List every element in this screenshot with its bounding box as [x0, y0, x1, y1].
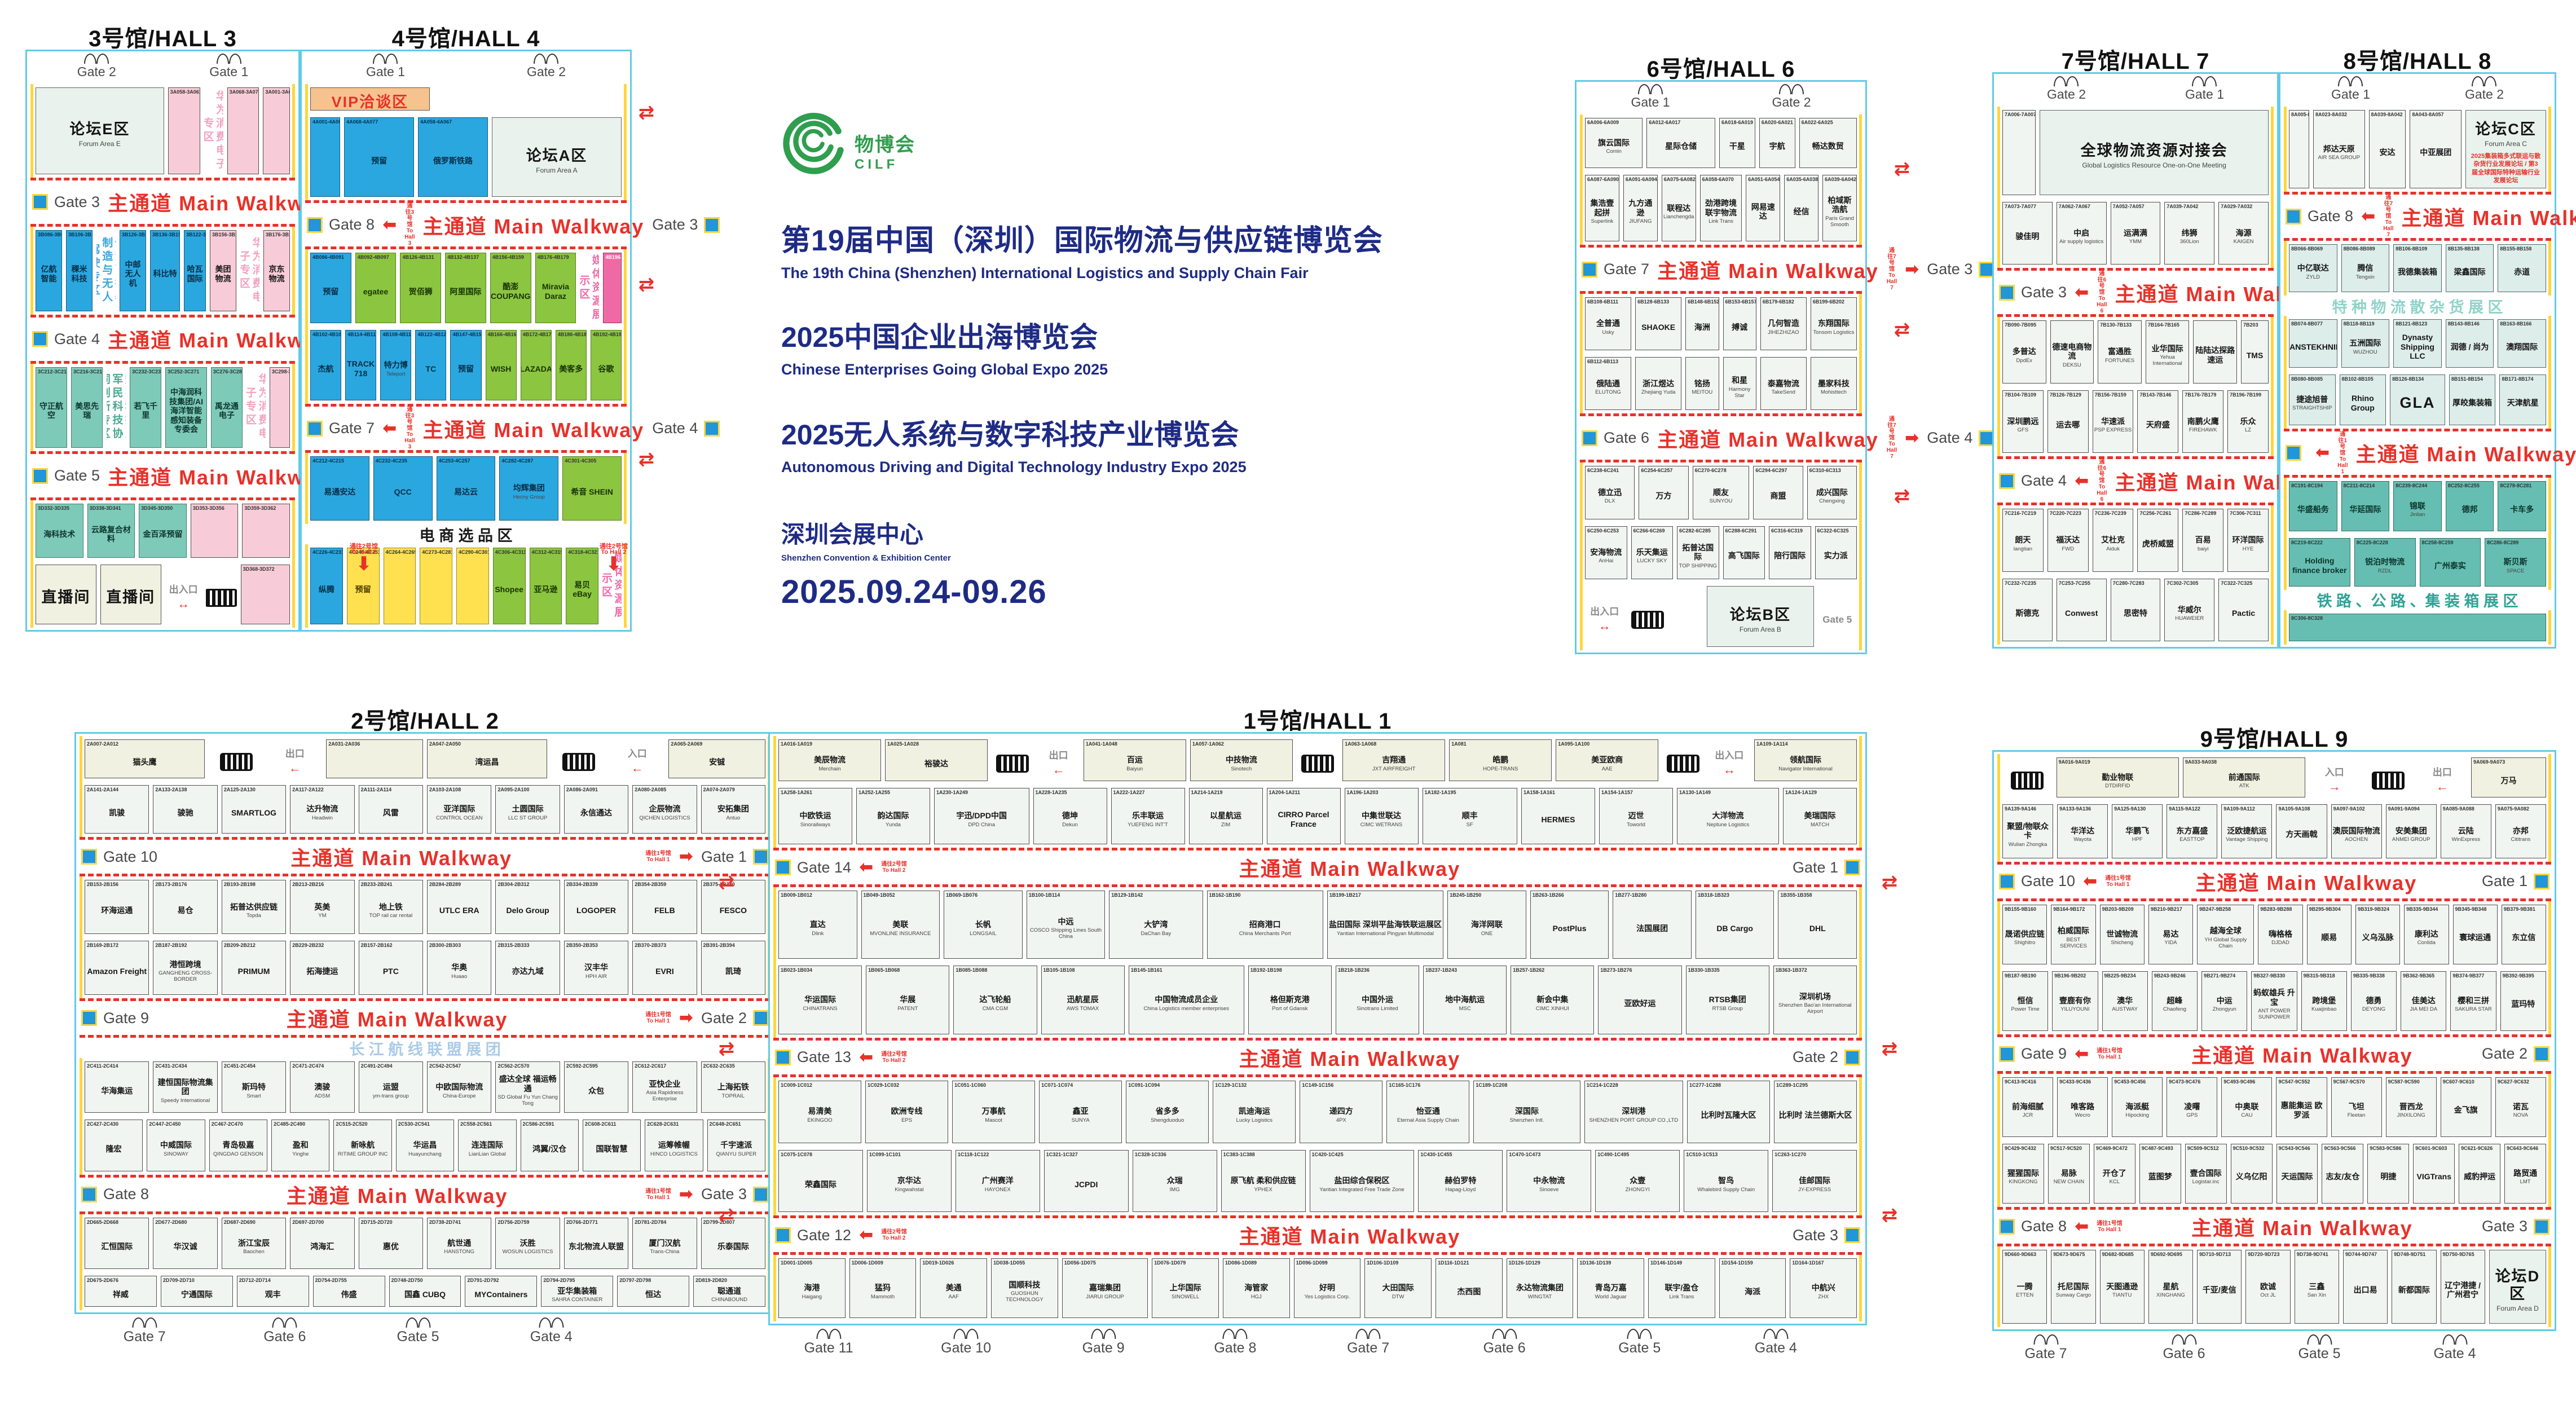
booth-id: 7C302-7C305: [2167, 580, 2198, 586]
booth-label: 纬狮: [2182, 228, 2198, 238]
booth-label: 特力博: [384, 360, 408, 370]
main-walkway-label: 主通道 Main Walkway: [108, 324, 329, 354]
booth-深圳港: 1C214-1C228深圳港SHENZHEN PORT GROUP CO.,LT…: [1584, 1081, 1683, 1143]
walkway-gate-left: Gate 9: [2021, 1045, 2067, 1063]
booth-id: 1D116-1D121: [1438, 1260, 1469, 1266]
booth-id: 7C236-7C239: [2095, 510, 2126, 516]
booth-sublabel: Yantian International Pingyan Multimodal: [1337, 931, 1434, 937]
gate-label: Gate 9: [1082, 1340, 1125, 1356]
booth-顺丰: 1A182-1A195顺丰SF: [1423, 788, 1518, 844]
booth-id: 2B169-2B172: [87, 942, 118, 948]
booth-id: 3C232-3C235: [132, 369, 161, 374]
booth-id: 9B379-9B381: [2504, 906, 2535, 912]
booth-恒达: 2D797-2D798恒达: [617, 1276, 689, 1307]
gate-arch-icon: [2442, 1334, 2467, 1345]
booth-sublabel: Yunda: [886, 822, 901, 828]
booth-sublabel: DEYONG: [2362, 1006, 2385, 1012]
booth-青岛万嘉: 1D136-1D139青岛万嘉World Jaguar: [1577, 1258, 1644, 1318]
escalator-icon: [551, 739, 606, 778]
booth-Holding-finance-broker: 8C219-8C222Holding finance broker: [2289, 538, 2350, 586]
gate-label: Gate 2: [2465, 87, 2504, 102]
booth-佳美达: 9B362-9B365佳美达JIA MEI DA: [2401, 971, 2446, 1031]
booth-label: 直播间: [106, 589, 155, 607]
booth-id: 1C189-1C208: [1476, 1082, 1507, 1088]
booth-label: 越海全球: [2210, 926, 2242, 936]
booth-上华国际: 1D076-1D079上华国际SINOWELL: [1152, 1258, 1219, 1318]
booth-sublabel: SHENZHEN PORT GROUP CO.,LTD: [1589, 1117, 1679, 1123]
booth-sublabel: Navigator International: [1778, 766, 1833, 772]
booth-sublabel: JCR: [2023, 1112, 2033, 1118]
booth-label: 顺易: [2321, 933, 2337, 942]
booth-label: 顺丰: [1462, 811, 1478, 821]
logo-english: CILF: [855, 157, 915, 173]
booth-label: 万马: [2501, 776, 2517, 786]
booth-label: 亿航智能: [37, 265, 60, 283]
gate-arch-icon: [816, 1329, 841, 1339]
booth-label: Amazon Freight: [87, 967, 147, 976]
gate-label: Gate 1: [2185, 87, 2224, 102]
escalator-glyph: [220, 753, 253, 771]
booth-label: 千亚/麦信: [2203, 1285, 2236, 1295]
gate-entrance: Gate 7: [2024, 1334, 2067, 1362]
booth-label: 全球物流资源对接会: [2081, 142, 2228, 160]
booth-id: 2C467-2C470: [212, 1121, 243, 1127]
booth-sublabel: CHINATRANS: [803, 1006, 838, 1012]
booth-label: 骏驰: [178, 808, 193, 818]
booth-id: 4A001-4A005: [312, 119, 340, 125]
booth-band: 出入口↔论坛B区Forum Area BGate 5: [1580, 583, 1862, 650]
escalator-icon: [1628, 586, 1667, 647]
booth-拓普达国际: 6C282-6C285拓普达国际TOP SHIPPING: [1677, 526, 1719, 579]
booth-sublabel: YM: [318, 913, 326, 919]
main-walkway: Gate 7主通道 Main Walkway通往7号馆To Hall 7➡Gat…: [1580, 245, 1862, 294]
booth-id: 2C586-2C591: [523, 1121, 554, 1127]
booth-id: 4A068-4A077: [346, 119, 378, 125]
booth-label: 数字科技及军民科技协同创新专区: [107, 368, 126, 447]
booth-label: 华延国际: [2349, 505, 2381, 514]
booth-华海集运: 2C411-2C414华海集运: [85, 1061, 149, 1113]
booth-鸿翼/汉仓: 2C586-2C591鸿翼/汉仓: [521, 1120, 579, 1171]
hall-2-title: 2号馆/HALL 2: [351, 703, 499, 735]
booth-label: 几何智造: [1768, 319, 1799, 328]
booth-sublabel: GPS: [2186, 1112, 2198, 1118]
booth-id: 1B192-1B198: [1250, 967, 1282, 973]
booth-东方嘉盛: 9A115-9A122东方嘉盛EASTTOP: [2167, 804, 2217, 858]
booth-label: 蚂蚁雄兵 升宝: [2253, 988, 2295, 1007]
booth-旗云国际: 6A006-6A009旗云国际Comin: [1585, 118, 1643, 168]
booth-label: 荣鑫国际: [805, 1180, 836, 1189]
elevator-icon: [1846, 861, 1859, 874]
booth-label: 盐田综合保税区: [1334, 1176, 1389, 1186]
booth-安铖: 2A065-2A069安铖: [668, 739, 765, 778]
booth-出口: 出口←: [1037, 739, 1079, 781]
booth-id: 8B151-8B154: [2451, 376, 2483, 382]
booth-RTSB集团: 1B330-1B335RTSB集团RTSB Group: [1686, 966, 1769, 1034]
to-hall-arrow-icon: ➡: [1905, 430, 1919, 447]
booth-众壹: 1C490-1C495众壹ZHONGYI: [1595, 1150, 1680, 1213]
booth-label: 建恒国际物流集团: [155, 1078, 215, 1096]
booth-label: 海派: [1745, 1287, 1760, 1297]
gate-label: Gate 10: [941, 1340, 991, 1356]
booth-广州泰实: 8C258-8C259广州泰实: [2420, 538, 2481, 586]
booth-海港: 1D001-1D005海港Haigang: [778, 1258, 846, 1318]
booth-label: 旗云国际: [1598, 138, 1630, 148]
booth-国鑫-CUBQ: 2D748-2D750国鑫 CUBQ: [389, 1276, 461, 1307]
booth-LOGOPER: 2B334-2B339LOGOPER: [564, 880, 628, 934]
booth-label: 盐田国际 深圳平盐海铁联运展区: [1329, 920, 1442, 929]
booth-label: 科比特: [153, 269, 177, 279]
booth-label: 壹合国际: [2190, 1169, 2222, 1178]
booth-id: 7A073-7A077: [2005, 204, 2036, 209]
booth-sublabel: Oct JL: [2260, 1292, 2275, 1298]
booth-label: Shopee: [495, 585, 523, 594]
booth-思密特: 7C280-7C283思密特: [2111, 579, 2161, 642]
booth-id: 2A117-2A122: [292, 787, 324, 792]
elevator-icon: [1980, 432, 1993, 444]
hall-link-arrows: ⇄: [639, 451, 655, 469]
booth-id: 9A091-9A094: [2388, 806, 2420, 812]
booth-id: 1A025-1A028: [887, 741, 919, 747]
booth-中海润科技集团/AI海洋智能感知装备专委会: 3C252-3C271中海润科技集团/AI海洋智能感知装备专委会: [165, 367, 207, 448]
gate-label: Gate 7: [1347, 1340, 1389, 1356]
booth-id: 7A039-7A042: [2167, 204, 2198, 209]
booth-label: 众瑞: [1167, 1176, 1183, 1186]
booth-label: 梁鑫国际: [2454, 267, 2486, 277]
booth-id: 7C322-7C325: [2221, 580, 2252, 586]
walkway-gate-right: Gate 3: [1927, 261, 1972, 278]
booth-美联: 1B049-1B052美联MVONLINE INSURANCE: [861, 891, 940, 959]
booth-label: 京东物流: [265, 265, 288, 283]
booth-id: 1C214-1C228: [1587, 1082, 1618, 1088]
booth-和星: 和星Harmony Star: [1723, 357, 1756, 410]
main-walkway: Gate 4⬅通往6号馆To Hall 6主通道 Main Walkway通往8…: [1997, 456, 2274, 505]
booth-sublabel: Wulian Zhongka: [2009, 841, 2047, 848]
booth-康利达: 9B335-9B344康利达Conlida: [2404, 905, 2449, 964]
booth-id: 6C254-6C257: [1641, 468, 1672, 473]
booth-label: 辽宁港捷 / 广州君宁: [2442, 1281, 2483, 1299]
booth-label: 澳华: [2117, 996, 2133, 1006]
booth-华汉诚: 2D677-2D680华汉诚: [153, 1218, 217, 1269]
booth-label: 若飞千里: [131, 402, 160, 420]
hall-link-arrows: ⇄: [1882, 874, 1898, 892]
booth-sublabel: →: [2328, 779, 2341, 794]
booth-label: 艾杜克: [2101, 535, 2125, 545]
booth-中邮无人机: 3B126-3B131中邮无人机: [120, 230, 146, 311]
booth-sublabel: AUSTWAY: [2112, 1006, 2138, 1012]
booth-id: 3C298-3C321: [272, 369, 290, 374]
booth-id: 9B164-9B172: [2053, 906, 2085, 912]
main-walkway-label: 主通道 Main Walkway: [423, 210, 645, 240]
booth-德速电商物流: 德速电商物流DEKSU: [2050, 320, 2094, 384]
walkway-gate-left: Gate 3: [54, 193, 100, 211]
walkway-gate-right: Gate 3: [701, 1186, 747, 1203]
booth-HERMES: 1A158-1A161HERMES: [1521, 788, 1595, 844]
booth-label: 湾运昌: [475, 757, 499, 767]
booth-band: 7A073-7A077骏佳明7A062-7A067中启Air supply lo…: [1997, 199, 2274, 268]
booth-label: 润德 / 尚为: [2451, 342, 2489, 352]
booth-id: 1D076-1D079: [1154, 1260, 1186, 1266]
escalator-glyph: [2011, 772, 2044, 790]
booth-label: 出入口: [169, 584, 198, 596]
booth-id: 4B192-4B195: [593, 332, 622, 337]
gate-entrance: Gate 2: [2047, 76, 2086, 102]
booth-label: 高飞国际: [1728, 551, 1760, 561]
booth-id: 3A068-3A071: [230, 89, 259, 95]
booth-label: 海港: [804, 1283, 820, 1293]
booth-label: 斯德克: [2015, 609, 2039, 618]
elevator-icon: [706, 422, 718, 435]
booth-id: 1A230-1A249: [936, 790, 968, 795]
booth-id: 2B173-2B176: [155, 882, 187, 887]
booth-label: 华运昌: [413, 1140, 437, 1150]
gate-label: Gate 7: [2024, 1346, 2067, 1362]
booth-id: 4A058-4A067: [420, 119, 452, 125]
booth-sublabel: ←: [1053, 763, 1065, 777]
booth-深国际: 1C189-1C208深国际Shenzhen Intl.: [1473, 1081, 1580, 1143]
booth-id: 2B304-2B312: [497, 882, 529, 887]
hall-6-plan: Gate 1Gate 26A006-6A009旗云国际Comin6A012-6A…: [1575, 80, 1867, 654]
booth-label: 业华国际: [2152, 344, 2183, 354]
booth-原飞航-柔和供应链: 1C383-1C388原飞航 柔和供应链YPHEX: [1221, 1150, 1306, 1213]
logo-chinese: 物博会: [855, 129, 915, 157]
booth-label: Delo Group: [507, 906, 549, 915]
booth-希音-SHEIN: 4C301-4C305希音 SHEIN: [562, 456, 622, 521]
booth-label: 大田国际: [1382, 1283, 1414, 1293]
booth-id: 3C276-3C281: [213, 369, 243, 374]
booth-label: 华鹏飞: [2125, 826, 2149, 836]
hall-8-plan: Gate 1Gate 28A005-8A0078A023-8A032邦达天原AI…: [2279, 72, 2556, 649]
gate-entrance: Gate 5: [1618, 1329, 1661, 1356]
booth-id: 3C212-3C215: [38, 369, 67, 374]
booth-sublabel: QINGDAO GENSON: [213, 1151, 263, 1157]
booth-id: 1C321-1C327: [1046, 1152, 1078, 1157]
gate-arch-icon: [132, 1317, 157, 1328]
booth-id: 4B166-4B169: [488, 332, 517, 337]
booth-id: 7B176-7B179: [2185, 392, 2216, 398]
booth-猛犸: 1D006-1D009猛犸Mammoth: [849, 1258, 917, 1318]
booth-中启: 7A062-7A067中启Air supply logistics: [2057, 202, 2107, 265]
booth-id: 4C232-4C235: [376, 458, 407, 464]
gate-label: Gate 6: [2163, 1346, 2205, 1362]
booth-label: 乐天集运: [1636, 548, 1668, 557]
booth-id: 9D748-9D751: [2394, 1251, 2425, 1257]
booth-label: 哈瓦国际: [186, 265, 204, 283]
booth-id: 9C567-9C570: [2333, 1079, 2365, 1085]
booth-纬狮: 7A039-7A042纬狮360Lion: [2164, 202, 2214, 265]
booth-志友/友仓: 9C563-9C566志友/友仓: [2322, 1144, 2363, 1204]
hall-top-gates: Gate 1Gate 2: [1580, 84, 1862, 114]
booth-band: 6A087-6A090集浩壹起拼Superlink6A091-6A094九方通逊…: [1580, 171, 1862, 245]
booth-顺友: 6C270-6C278顺友SUNYOU: [1693, 466, 1750, 519]
main-walkway: Gate 9主通道 Main Walkway通往1号馆To Hall 1➡Gat…: [80, 998, 770, 1038]
booth-sublabel: Paris Grand Smooth: [1824, 215, 1855, 228]
booth-id: 1A154-1A157: [1601, 790, 1633, 795]
fair-title-en: The 19th China (Shenzhen) International …: [781, 265, 1514, 282]
main-walkway: Gate 3⬅通往6号馆To Hall 6主通道 Main Walkway通往8…: [1997, 268, 2274, 317]
booth-sublabel: WOSUN LOGISTICS: [503, 1249, 553, 1255]
booth-sublabel: IMG: [1170, 1187, 1180, 1193]
booth-sublabel: LianLian Global: [469, 1151, 506, 1157]
walkway-gate-left: Gate 12: [797, 1227, 851, 1244]
booth-id: 9C429-9C432: [2005, 1145, 2036, 1151]
booth-label: 低空飞行器制造与无人驾驶专区: [96, 231, 116, 310]
booth-label: 航世通: [447, 1239, 471, 1248]
gate-entrance: Gate 1: [2185, 76, 2224, 102]
booth-id: 4B102-4B105: [312, 332, 341, 337]
booth-超峰: 9B243-9B246超峰Chaofeng: [2152, 971, 2198, 1031]
booth-业华国际: 7B164-7B165业华国际Yehua International: [2146, 320, 2190, 384]
booth-蓝图梦: 9C487-9C493蓝图梦: [2139, 1144, 2181, 1204]
booth-id: 1A057-1A062: [1192, 741, 1224, 747]
main-walkway-label: 主通道 Main Walkway: [915, 1220, 1785, 1250]
booth-label: 海源: [2236, 228, 2252, 238]
elevator-icon: [2001, 287, 2013, 299]
booth-label: 均辉集团: [513, 483, 545, 493]
booth-前通国际: 9A033-9A038前通国际ATK: [2183, 757, 2305, 797]
to-hall-arrow-icon: ⬅: [2361, 208, 2375, 225]
booth-id: 1A109-1A114: [1756, 741, 1788, 747]
booth-id: 2B370-2B373: [635, 942, 666, 948]
booth-sublabel: ANT POWER SUNPOWER: [2253, 1008, 2295, 1020]
walkway-gate-right: Gate 1: [1793, 859, 1838, 876]
booth-label: 新会中集: [1536, 995, 1568, 1004]
booth-id: 2D794-2D795: [543, 1277, 575, 1283]
booth-label: 佳美达: [2412, 996, 2436, 1006]
booth-id: 4C264-4C269: [386, 549, 416, 555]
booth: 3D368-3D372: [241, 565, 290, 624]
booth-id: 6B148-6B152: [1688, 299, 1719, 305]
booth-id: 2A086-2A091: [566, 787, 598, 792]
booth-sublabel: Sinotrans Limited: [1357, 1006, 1398, 1012]
booth-华速派: 7B156-7B159华速派PSP EXPRESS: [2093, 390, 2134, 453]
hall-3-plan: Gate 2Gate 1论坛E区Forum Area E3A058-3A061华…: [25, 50, 300, 632]
booth-id: 2B229-2B232: [292, 942, 324, 948]
booth-label: 亚洋国际: [443, 804, 475, 814]
booth-id: 9D682-9D685: [2102, 1251, 2134, 1257]
booth-label: 联程达: [1667, 204, 1690, 213]
booth-sublabel: RZDL: [2378, 568, 2392, 574]
booth-sublabel: Kingwahstal: [895, 1187, 923, 1193]
booth-中集世联达: 1A196-1A203中集世联达CIMC WETRANS: [1345, 788, 1419, 844]
booth-label: 直达: [810, 920, 826, 929]
to-hall-caption: 通往3号馆To Hall 3: [404, 407, 415, 450]
booth: 4A001-4A005: [310, 117, 340, 197]
booth-label: 京华达: [897, 1176, 921, 1186]
booth-sublabel: DTW: [1392, 1294, 1404, 1300]
booth-sublabel: Fleetan: [2348, 1112, 2366, 1118]
booth-label: 中亚展团: [2420, 148, 2451, 157]
booth-label: 中奥联: [2235, 1102, 2258, 1112]
booth-id: 9B225-9B234: [2104, 973, 2136, 979]
booth-label: 德坤: [1062, 811, 1078, 821]
booth-band: 2C427-2C430隆宏2C447-2C450中威国际SINOWAY2C467…: [80, 1116, 770, 1174]
booth-id: 7B104-7B109: [2005, 392, 2036, 398]
booth-id: 9C643-9C646: [2507, 1145, 2538, 1151]
main-walkway-label: 主通道 Main Walkway: [108, 187, 329, 217]
gate-arch-icon: [2033, 1334, 2058, 1345]
booth-label: 俄陆通: [1596, 379, 1620, 389]
hall-link-arrows: ⇄: [719, 1207, 735, 1224]
booth-label: 锦联: [2410, 501, 2425, 511]
booth-id: 9C473-9C476: [2169, 1079, 2200, 1085]
booth-id: 8B155-8B158: [2500, 246, 2531, 252]
booth-label: 连连国际: [472, 1140, 503, 1150]
booth-band: 2A141-2A144凯骏2A133-2A138骏驰2A125-2A130SMA…: [80, 782, 770, 838]
booth-海洲: 6B148-6B152海洲: [1685, 297, 1719, 350]
gate-label: Gate 2: [1772, 95, 1811, 110]
booth-实力派: 6C322-6C325实力派: [1815, 526, 1857, 579]
booth-id: 1B069-1B076: [946, 892, 977, 898]
booth-id: 1B245-1B250: [1450, 892, 1481, 898]
booth-sublabel: ATK: [2239, 783, 2249, 789]
booth-墨家科技: 墨家科技Mohisttech: [1811, 357, 1857, 410]
booth-id: 7C216-7C219: [2005, 510, 2036, 516]
booth-id: 6A087-6A090: [1587, 177, 1619, 182]
booth-格但斯克港: 1B192-1B198格但斯克港Port of Gdansk: [1248, 966, 1332, 1034]
booth-Miravia-Daraz: 4B176-4B179Miravia Daraz: [535, 253, 576, 323]
main-walkway-label: 主通道 Main Walkway: [2402, 202, 2576, 231]
walkway-gate-left: Gate 10: [2021, 872, 2075, 890]
booth-id: 1D154-1D159: [1721, 1260, 1753, 1266]
booth-sublabel: Speedy International: [161, 1098, 210, 1104]
gate-arch-icon: [406, 1317, 430, 1328]
booth-sublabel: GFS: [2018, 427, 2029, 433]
booth-澳辰国际物流: 9A097-9A102澳辰国际物流AOCHEN: [2331, 804, 2382, 858]
booth-TMS: 7B203TMS: [2241, 320, 2269, 384]
booth-id: 9D738-9D741: [2297, 1251, 2328, 1257]
booth-祥威: 2D675-2D676祥威: [85, 1276, 157, 1307]
booth-预留: 4B147-4B155预留: [450, 330, 481, 400]
booth-吉翔通: 1A063-1A068吉翔通JXT AIRFREIGHT: [1342, 739, 1445, 781]
booth-label: 福沃达: [2056, 535, 2080, 545]
booth-label: 云路复合材料: [89, 525, 134, 544]
gate-entrance: Gate 4: [530, 1317, 573, 1345]
booth-出口易: 9D744-9D747出口易: [2343, 1250, 2388, 1324]
main-walkway: Gate 4主通道 Main Walkway通往4号馆To Hall 4➡Gat…: [30, 315, 295, 364]
main-walkway-label: 主通道 Main Walkway: [2139, 867, 2474, 896]
booth-id: 9A105-9A108: [2278, 806, 2310, 812]
booth-label: 柏威国际: [2058, 926, 2089, 936]
booth-sublabel: WINGTAT: [1528, 1294, 1552, 1300]
booth-label: 长帆: [975, 920, 991, 929]
booth-id: 3D338-3D341: [90, 505, 121, 511]
booth-出入口: 出入口↔: [165, 565, 202, 624]
booth-label: 中国外运: [1362, 995, 1393, 1004]
booth-sublabel: China Logistics member enterprises: [1143, 1006, 1229, 1012]
booth-id: 1B085-1B088: [955, 967, 987, 973]
booth-label: 法国展团: [1636, 924, 1668, 933]
elevator-icon: [2001, 475, 2013, 487]
booth-id: 7B143-7B146: [2139, 392, 2171, 398]
booth-云路复合材料: 3D338-3D341云路复合材料: [87, 504, 135, 558]
booth-id: 2C612-2C617: [635, 1063, 666, 1069]
booth-band: 9C413-9C416前海细腻JCR9C433-9C436唯客路Wecro9C4…: [1997, 1074, 2551, 1140]
booth-sublabel: DpdEx: [2016, 358, 2033, 364]
elevator-icon: [309, 219, 321, 231]
booth-id: 2C558-2C561: [460, 1121, 492, 1127]
booth-id: 6B108-6B111: [1587, 299, 1618, 305]
booth-id: 8B080-8B085: [2291, 376, 2323, 382]
booth-label: 方天画戟: [2286, 830, 2318, 839]
booth-label: 伟盛: [341, 1290, 357, 1299]
gate-arch-icon: [1492, 1329, 1517, 1339]
booth-id: 2B233-2B241: [361, 882, 393, 887]
booth-邦达天原: 8A023-8A032邦达天原AIR SEA GROUP: [2313, 110, 2365, 188]
booth-汉丰华: 2B350-2B353汉丰华HPH AIR: [564, 941, 628, 995]
booth-label: 预留: [355, 585, 371, 594]
booth-杰航: 4B102-4B105杰航: [310, 330, 341, 400]
booth-label: 威豹押运: [2464, 1172, 2495, 1182]
